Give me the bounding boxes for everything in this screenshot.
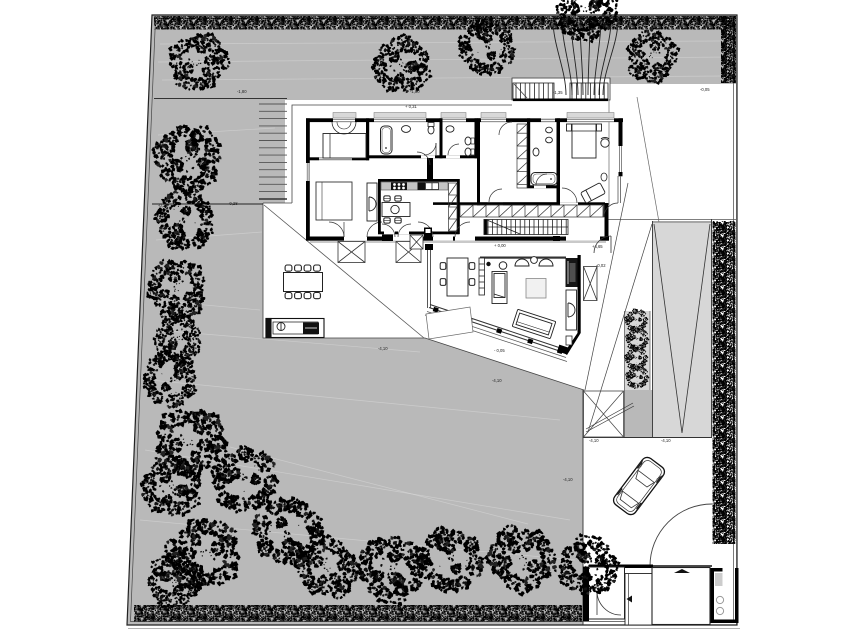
svg-text:-0,02: -0,02 (596, 263, 606, 268)
svg-text:- 0,05: - 0,05 (494, 348, 505, 353)
svg-text:-4,10: -4,10 (492, 378, 502, 383)
svg-text:+ 0,00: + 0,00 (494, 243, 506, 248)
svg-text:+ 0,31: + 0,31 (405, 104, 417, 109)
svg-text:-1,80: -1,80 (237, 89, 247, 94)
svg-text:-4,10: -4,10 (563, 477, 573, 482)
svg-text:-1,80: -1,80 (410, 89, 420, 94)
svg-text:-4,10: -4,10 (378, 346, 388, 351)
svg-text:-0,28: -0,28 (158, 203, 168, 208)
svg-text:-4,10: -4,10 (661, 438, 671, 443)
svg-text:-4,10: -4,10 (589, 438, 599, 443)
svg-text:-0,28: -0,28 (228, 201, 238, 206)
svg-text:-0,05: -0,05 (700, 87, 710, 92)
svg-text:-1,35: -1,35 (553, 90, 563, 95)
svg-text:+4,65: +4,65 (592, 244, 603, 249)
